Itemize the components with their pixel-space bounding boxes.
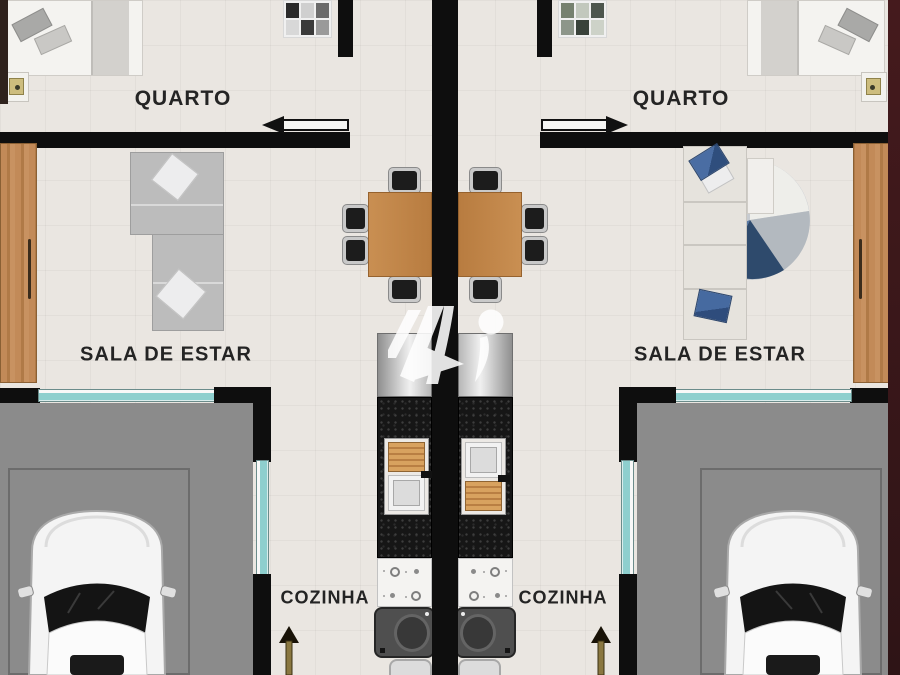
kitchen-label-right: COZINHA [519, 588, 608, 609]
door-swing-arrow-icon [538, 114, 630, 136]
living-room-label-right: SALA DE ESTAR [634, 344, 806, 367]
chair-icon [469, 167, 502, 194]
dining-table-icon [458, 192, 522, 277]
entry-arrow-icon [591, 626, 611, 675]
garage-wall [850, 388, 890, 404]
kitchen-label-left: COZINHA [281, 588, 370, 609]
car-icon [714, 505, 872, 675]
side-table-icon [747, 158, 774, 214]
bed-icon [747, 0, 885, 76]
window-icon [621, 460, 634, 576]
wardrobe-icon [558, 0, 607, 38]
laundry-tank-icon [455, 607, 516, 658]
left-border-strip [0, 0, 8, 104]
floor-plan: QUARTO QUARTO SALA DE ESTAR SALA DE ESTA… [0, 0, 900, 675]
sofa-seam [131, 204, 223, 206]
living-room-label-left: SALA DE ESTAR [80, 344, 252, 367]
window-icon [674, 389, 852, 402]
wall-stub [537, 0, 552, 57]
bedroom-label-left: QUARTO [135, 87, 232, 111]
lamp-icon [866, 78, 881, 95]
faucet-icon [498, 475, 510, 482]
drainboard [465, 481, 502, 511]
kitchen-sink-icon [461, 438, 506, 515]
bedroom-label-right: QUARTO [633, 87, 730, 111]
nightstand-icon [861, 72, 887, 102]
garage-wall [619, 400, 637, 462]
entry-door-icon [853, 143, 890, 383]
stove-icon [458, 558, 513, 607]
chair-icon [521, 236, 548, 265]
chair-icon [521, 204, 548, 233]
bed-blanket [761, 1, 799, 75]
right-border-strip [888, 0, 900, 675]
logo-watermark-icon [388, 296, 528, 396]
washer-icon [458, 659, 501, 675]
sink-basin [465, 442, 502, 478]
garage-wall [619, 574, 637, 675]
door-handle-icon [859, 239, 862, 299]
